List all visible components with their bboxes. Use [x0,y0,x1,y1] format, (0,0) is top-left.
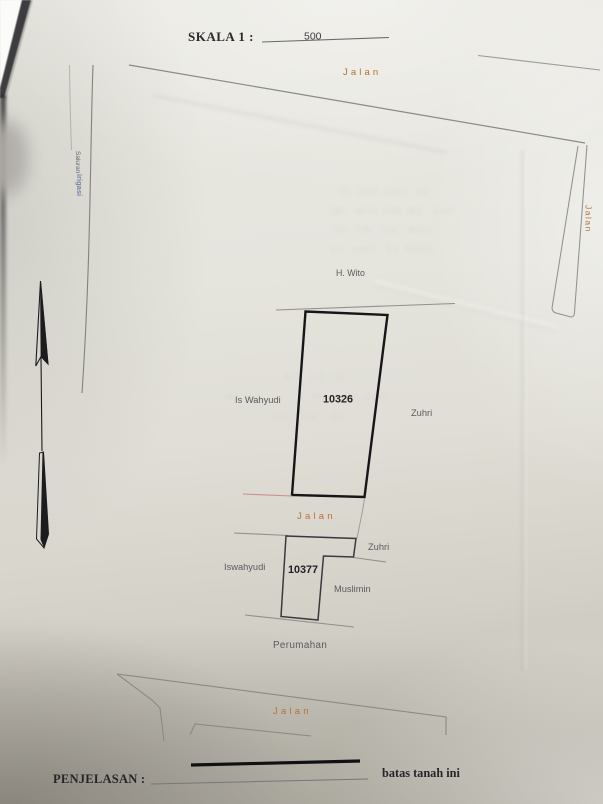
svg-text:Perumahan: Perumahan [273,640,327,651]
svg-text:10377: 10377 [288,564,318,576]
svg-text:10326: 10326 [323,394,353,406]
svg-text:Jalan: Jalan [297,511,336,522]
svg-text:Jalan: Jalan [343,67,381,78]
svg-text:Zuhri: Zuhri [411,408,432,418]
svg-text:Iswahyudi: Iswahyudi [224,562,265,572]
svg-text:Zuhri: Zuhri [368,542,389,552]
svg-text:Muslimin: Muslimin [334,584,371,594]
svg-text:Jalan: Jalan [273,706,312,717]
svg-text:irigasi: irigasi [75,174,84,196]
svg-text:Is Wahyudi: Is Wahyudi [235,395,281,405]
svg-text:PENJELASAN :: PENJELASAN : [53,772,145,786]
svg-text:H. Wito: H. Wito [336,268,365,278]
svg-text:Jalan: Jalan [584,205,594,233]
svg-text:Saluran: Saluran [74,151,81,174]
svg-text:batas tanah ini: batas tanah ini [382,766,460,780]
svg-text:500: 500 [304,31,322,43]
svg-text:SKALA 1 :: SKALA 1 : [188,29,254,44]
